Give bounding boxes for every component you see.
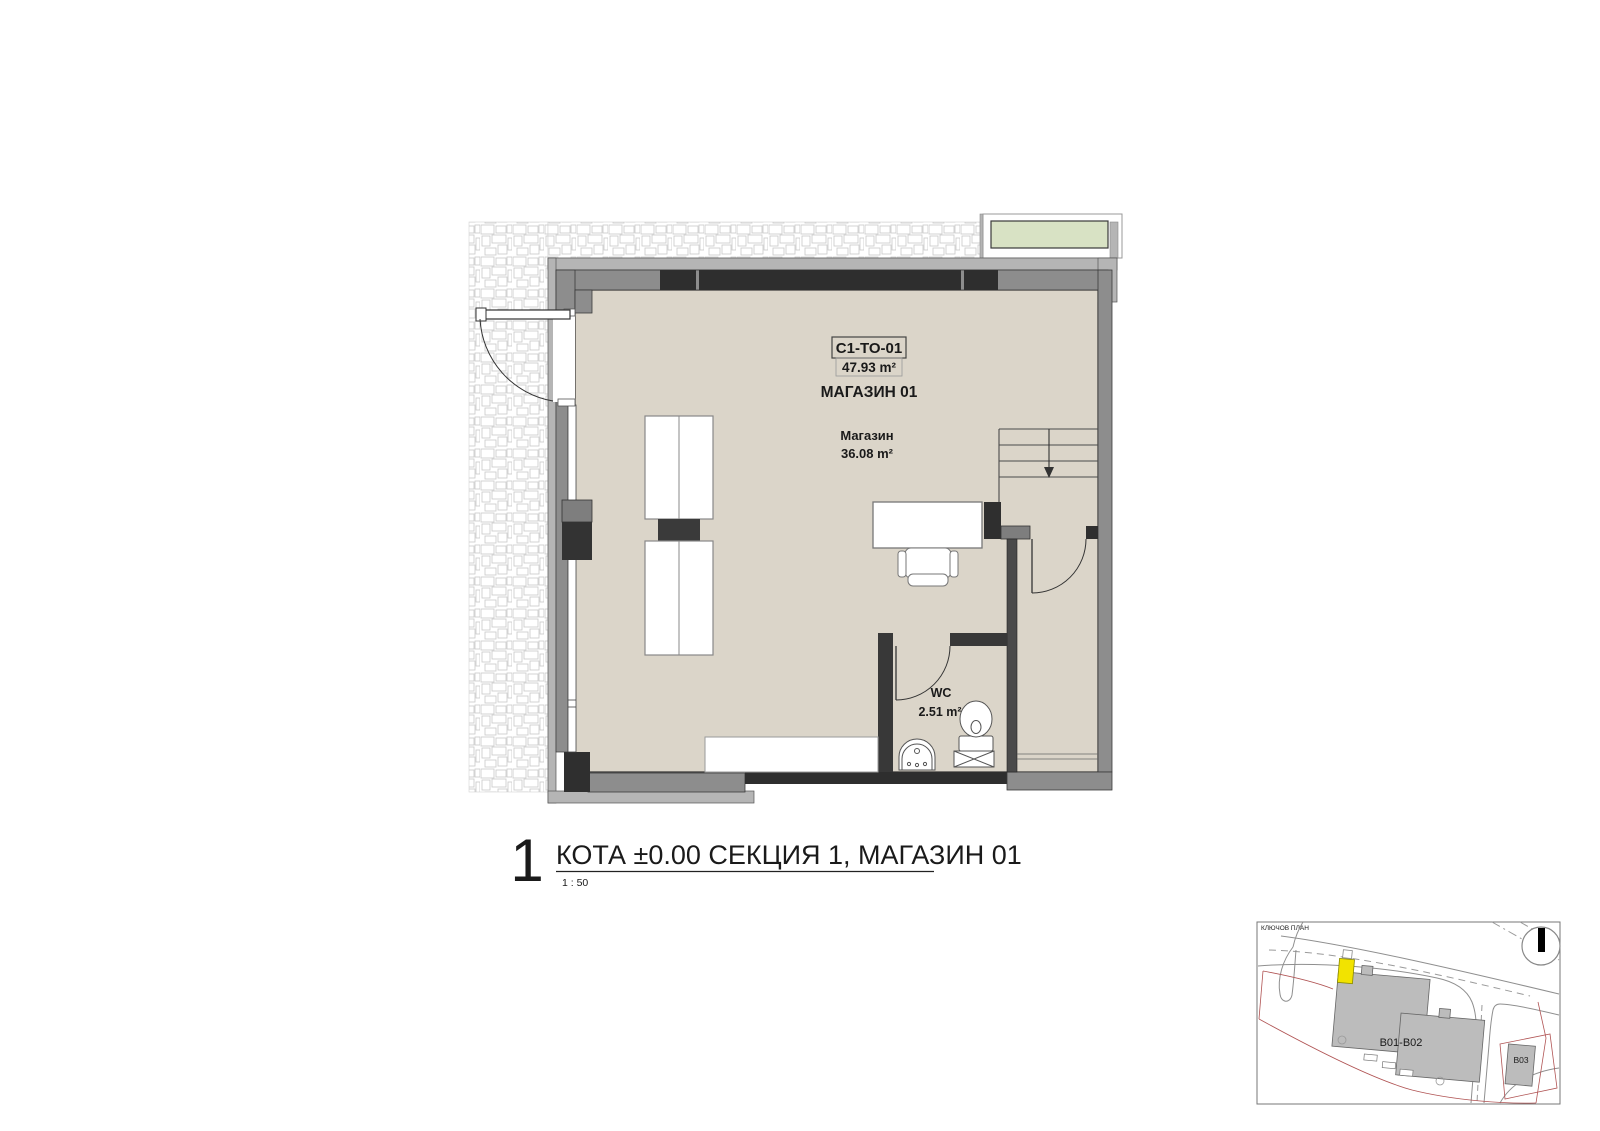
key-plan-map: КЛЮЧОВ ПЛАН (1257, 922, 1560, 1104)
drawing-sheet: C1-TO-01 47.93 m² МАГАЗИН 01 Магазин 36.… (0, 0, 1600, 1131)
sink (899, 739, 935, 770)
desk (873, 502, 982, 548)
floor-plan-drawing: C1-TO-01 47.93 m² МАГАЗИН 01 Магазин 36.… (0, 0, 1600, 1131)
wc-area: 2.51 m² (918, 705, 961, 719)
unit-name: МАГАЗИН 01 (821, 384, 918, 401)
unit-label-box: C1-TO-01 47.93 m² (832, 337, 906, 376)
highlighted-unit (1337, 958, 1354, 983)
building-b03 (1505, 1044, 1535, 1086)
counter (705, 737, 878, 772)
room-name: Магазин (840, 428, 893, 443)
building-secondary-label: B03 (1513, 1055, 1528, 1065)
wc-name: WC (931, 686, 952, 700)
planter (980, 214, 1122, 258)
north-indicator (1522, 927, 1560, 965)
building-main-label: B01-B02 (1380, 1037, 1423, 1049)
view-scale: 1 : 50 (562, 877, 588, 889)
key-plan-label: КЛЮЧОВ ПЛАН (1261, 925, 1309, 932)
view-title: КОТА ±0.00 СЕКЦИЯ 1, МАГАЗИН 01 (556, 840, 1022, 870)
view-number: 1 (510, 827, 543, 894)
unit-area: 47.93 m² (842, 360, 897, 375)
room-area: 36.08 m² (841, 446, 894, 461)
unit-code: C1-TO-01 (836, 340, 902, 357)
title-block: 1 КОТА ±0.00 СЕКЦИЯ 1, МАГАЗИН 01 1 : 50 (510, 827, 1022, 894)
